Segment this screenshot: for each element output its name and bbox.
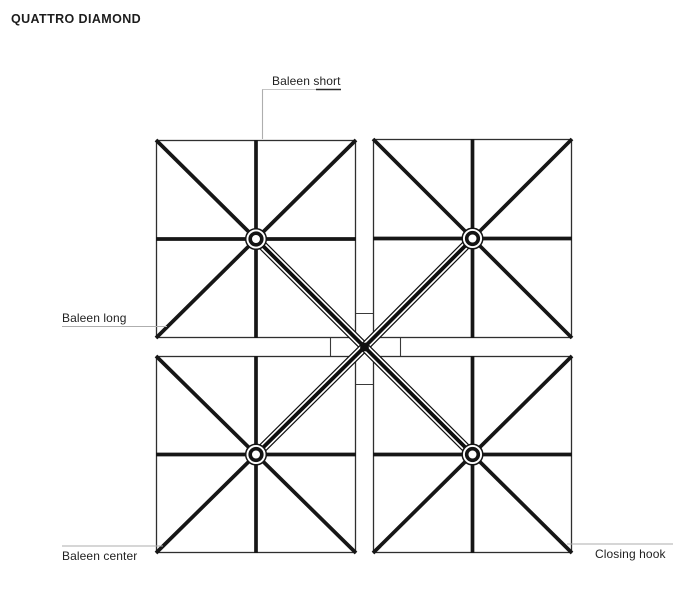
canopy-hub	[462, 444, 483, 465]
hub-inner-ring	[467, 449, 479, 461]
umbrella-diagram	[0, 0, 681, 590]
hub-inner-ring	[250, 233, 262, 245]
hub-inner-ring	[467, 233, 479, 245]
hub-inner-ring	[250, 449, 262, 461]
canopy-bottom-left	[156, 345, 366, 553]
label-baleen-long: Baleen long	[62, 311, 127, 325]
label-closing-hook: Closing hook	[595, 547, 666, 561]
label-baleen-short: Baleen short	[272, 74, 341, 88]
mast	[360, 343, 369, 352]
label-baleen-center: Baleen center	[62, 549, 137, 563]
leader-lines	[62, 90, 673, 547]
canopy-top-left	[156, 140, 366, 349]
canopy-top-right	[363, 139, 572, 349]
canopy-hub	[462, 228, 483, 249]
canopy-bottom-right	[363, 345, 572, 553]
canopy-hub	[246, 444, 267, 465]
canopy-hub	[246, 229, 267, 250]
diagram-canvas: QUATTRO DIAMOND Baleen short Baleen long…	[0, 0, 681, 590]
